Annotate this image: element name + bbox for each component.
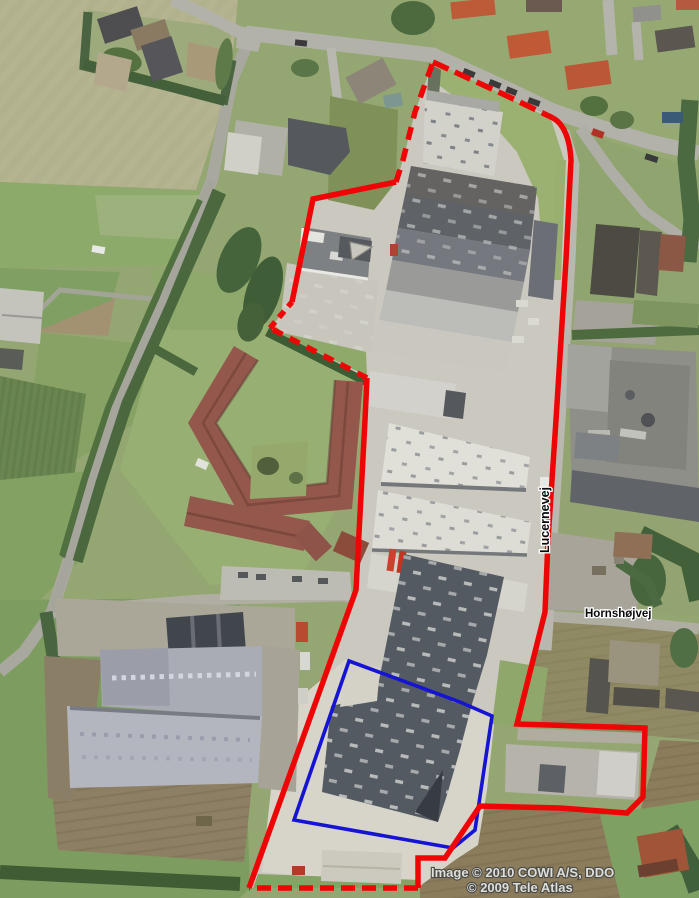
svg-text:© 2009 Tele Atlas: © 2009 Tele Atlas	[467, 880, 573, 895]
svg-text:Hornshøjvej: Hornshøjvej	[585, 608, 651, 620]
svg-text:Lucernevej: Lucernevej	[538, 487, 552, 553]
svg-text:Image © 2010 COWI A/S, DDO: Image © 2010 COWI A/S, DDO	[431, 865, 614, 880]
